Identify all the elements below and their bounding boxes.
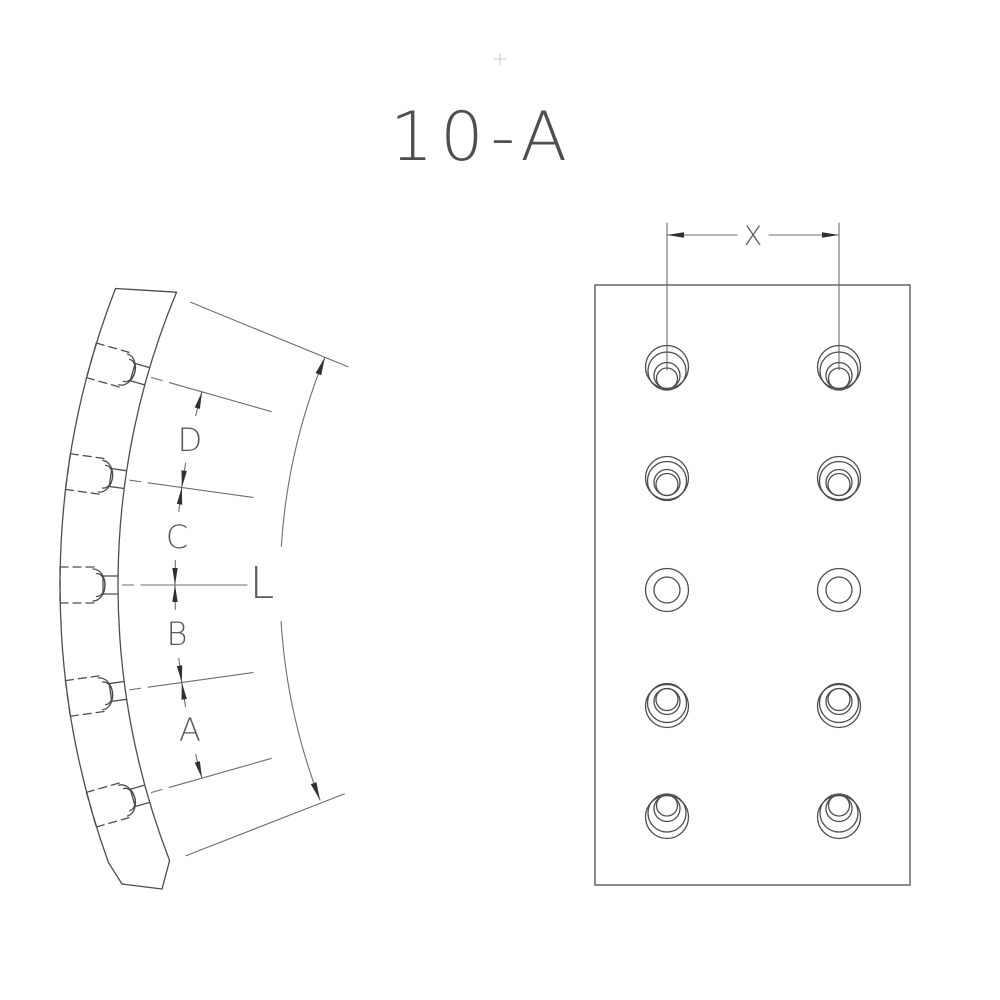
- inner-arc: [118, 292, 176, 860]
- arrowhead: [316, 357, 325, 375]
- rivet-hole: [65, 655, 255, 717]
- rivet-holes-side: [60, 343, 276, 827]
- arrowhead: [177, 488, 182, 505]
- arrowhead: [182, 683, 187, 700]
- arc-length-dimension: [281, 357, 325, 800]
- rivet-hole: [818, 346, 861, 391]
- dimension-label-X: X: [744, 221, 763, 252]
- lining-outline: [595, 285, 910, 885]
- rivet-hole: [60, 567, 247, 603]
- rivet-hole: [646, 569, 689, 612]
- rivet-hole: [818, 684, 861, 728]
- rivet-hole: [65, 454, 255, 516]
- registration-cross-mark: [494, 53, 506, 65]
- dimension-label-D: D: [178, 421, 203, 459]
- dimension-label-C: C: [166, 518, 188, 556]
- rivet-holes-face: [646, 346, 861, 839]
- rivet-hole: [86, 343, 276, 429]
- bottom-extension-ray: [186, 794, 344, 856]
- rivet-hole: [86, 741, 276, 827]
- technical-drawing: 10-A: [0, 0, 1000, 1000]
- rivet-hole: [818, 457, 861, 501]
- arrowhead: [667, 232, 684, 238]
- rivet-hole: [646, 346, 689, 391]
- top-end-face: [116, 289, 177, 293]
- bottom-end-face: [109, 861, 170, 889]
- drawing-canvas: 10-A: [0, 0, 1000, 1000]
- dimension-label-B: B: [167, 615, 188, 653]
- rivet-hole: [818, 569, 861, 612]
- arrowhead: [311, 782, 320, 800]
- side-profile-view: L D C B A: [60, 289, 348, 890]
- arrowhead: [182, 470, 187, 487]
- dimension-label-L: L: [250, 558, 275, 609]
- page-title: 10-A: [390, 98, 574, 177]
- rivet-hole: [818, 794, 861, 839]
- arrowhead: [195, 392, 202, 409]
- rivet-hole: [646, 457, 689, 501]
- arrowhead: [172, 585, 177, 602]
- arrowhead: [822, 232, 839, 238]
- rivet-hole: [646, 794, 689, 839]
- dimension-label-A: A: [179, 711, 201, 749]
- arrowhead: [172, 568, 177, 585]
- rivet-hole: [646, 684, 689, 728]
- arrowhead: [177, 665, 182, 682]
- face-view: X: [595, 221, 910, 885]
- arrowhead: [195, 761, 202, 778]
